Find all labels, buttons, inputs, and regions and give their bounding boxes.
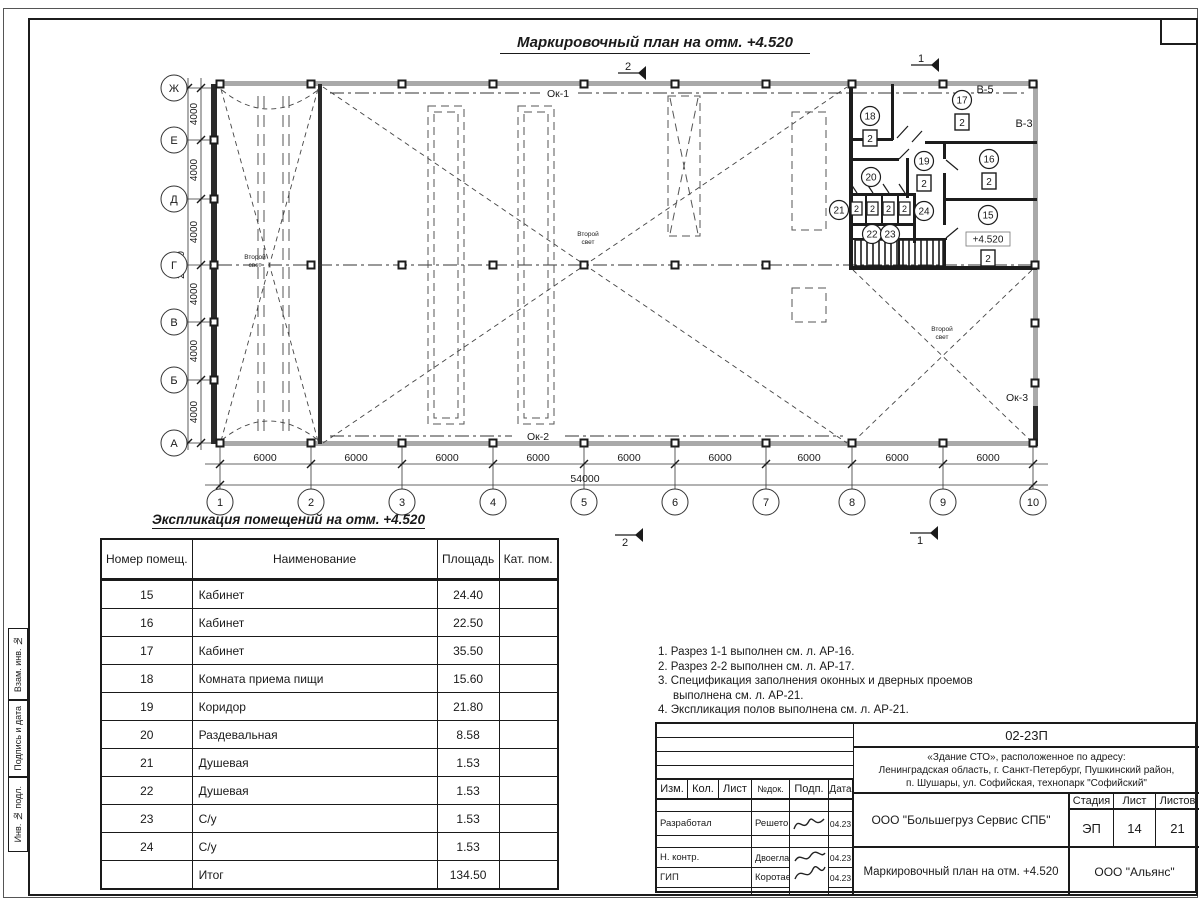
svg-text:8: 8 bbox=[849, 497, 855, 509]
explication-table: Номер помещ. Наименование Площадь Кат. п… bbox=[100, 538, 559, 890]
window-label-ok1: Ок-1 bbox=[547, 88, 569, 100]
svg-text:6000: 6000 bbox=[617, 452, 641, 464]
second-light-labels: Второйсвет Второйсвет Второйсвет bbox=[244, 230, 953, 341]
svg-text:Е: Е bbox=[170, 135, 177, 147]
table-row: 18Комната приема пищи15.60 bbox=[101, 665, 558, 693]
svg-text:7: 7 bbox=[763, 497, 769, 509]
col-podp: Подп. bbox=[790, 780, 829, 800]
svg-text:2: 2 bbox=[902, 204, 907, 214]
svg-text:6000: 6000 bbox=[435, 452, 459, 464]
title-block: Изм. Кол. Лист №док. Подп. Дата Разработ… bbox=[655, 722, 1197, 893]
svg-text:2: 2 bbox=[622, 537, 628, 549]
table-row: 20Раздевальная8.58 bbox=[101, 721, 558, 749]
svg-text:6: 6 bbox=[672, 497, 678, 509]
col-header-cat: Кат. пом. bbox=[499, 539, 558, 580]
svg-text:2: 2 bbox=[625, 61, 631, 73]
table-row: 21Душевая1.53 bbox=[101, 749, 558, 777]
svg-text:2: 2 bbox=[886, 204, 891, 214]
dimensions-horizontal: 600060006000600060006000600060006000 540… bbox=[205, 446, 1048, 515]
note-4: 4. Экспликация полов выполнена см. л. АР… bbox=[658, 703, 1030, 718]
col-data: Дата bbox=[829, 780, 854, 800]
room-marker-23: 23 bbox=[881, 225, 900, 244]
note-1: 1. Разрез 1-1 выполнен см. л. АР-16. bbox=[658, 645, 1030, 660]
svg-text:6000: 6000 bbox=[885, 452, 909, 464]
svg-text:16: 16 bbox=[983, 155, 995, 166]
svg-text:А: А bbox=[170, 438, 178, 450]
col-header-name: Наименование bbox=[192, 539, 437, 580]
sheet-number: 14 bbox=[1114, 810, 1156, 848]
room-marker-17: 172 bbox=[953, 91, 972, 131]
svg-text:2: 2 bbox=[867, 134, 873, 145]
room-marker-15: 15 +4.520 2 bbox=[966, 206, 1010, 267]
svg-text:4: 4 bbox=[490, 497, 496, 509]
svg-text:54000: 54000 bbox=[570, 473, 599, 485]
col-izm: Изм. bbox=[657, 780, 688, 800]
stage-value: ЭП bbox=[1070, 810, 1114, 848]
svg-text:1: 1 bbox=[917, 535, 923, 547]
role-developer: Разработал bbox=[657, 812, 752, 836]
svg-text:Ж: Ж bbox=[169, 83, 179, 95]
svg-text:2: 2 bbox=[986, 177, 992, 188]
col-header-area: Площадь bbox=[437, 539, 499, 580]
sheet-label: Лист bbox=[1114, 794, 1156, 810]
svg-text:свет: свет bbox=[935, 334, 948, 341]
staircase bbox=[855, 240, 943, 266]
svg-text:6000: 6000 bbox=[344, 452, 368, 464]
svg-text:5: 5 bbox=[581, 497, 587, 509]
stage-label: Стадия bbox=[1070, 794, 1114, 810]
name-developer: Решетова bbox=[752, 812, 790, 836]
svg-text:9: 9 bbox=[940, 497, 946, 509]
svg-text:2: 2 bbox=[959, 118, 965, 129]
svg-text:24: 24 bbox=[918, 207, 930, 218]
customer-company: ООО "Большегруз Сервис СПБ" bbox=[854, 794, 1070, 848]
section-mark-2-top: 2 bbox=[618, 61, 646, 80]
axis-bubbles-vertical: Ж Е Д Г В Б А bbox=[161, 75, 187, 456]
table-row: 22Душевая1.53 bbox=[101, 777, 558, 805]
total-area: 134.50 bbox=[437, 861, 499, 890]
signature-stroke bbox=[795, 852, 825, 879]
svg-text:6000: 6000 bbox=[253, 452, 277, 464]
room-marker-16: 162 bbox=[980, 150, 999, 190]
table-header-row: Номер помещ. Наименование Площадь Кат. п… bbox=[101, 539, 558, 580]
svg-text:В: В bbox=[170, 317, 177, 329]
room-marker-20: 20 bbox=[862, 168, 881, 187]
window-label-ok3: Ок-3 bbox=[1006, 392, 1028, 404]
table-row: 19Коридор21.80 bbox=[101, 693, 558, 721]
room-marker-24: 24 bbox=[915, 202, 934, 221]
svg-text:Второй: Второй bbox=[244, 253, 266, 261]
total-label: Итог bbox=[192, 861, 437, 890]
svg-text:15: 15 bbox=[982, 211, 994, 222]
svg-text:6000: 6000 bbox=[708, 452, 732, 464]
svg-text:4000: 4000 bbox=[189, 282, 200, 305]
svg-text:3: 3 bbox=[399, 497, 405, 509]
svg-text:2: 2 bbox=[921, 179, 927, 190]
window-label-ok2: Ок-2 bbox=[527, 431, 549, 443]
svg-text:4000: 4000 bbox=[189, 400, 200, 423]
col-list: Лист bbox=[719, 780, 752, 800]
svg-text:свет: свет bbox=[248, 262, 261, 269]
sheet-title: Маркировочный план на отм. +4.520 bbox=[854, 848, 1070, 895]
date-norm-control: 04.23 bbox=[829, 848, 854, 868]
col-header-num: Номер помещ. bbox=[101, 539, 192, 580]
svg-text:4000: 4000 bbox=[189, 220, 200, 243]
table-row: 17Кабинет35.50 bbox=[101, 637, 558, 665]
svg-text:Г: Г bbox=[171, 260, 177, 272]
side-stamp-podpis: Подпись и дата bbox=[8, 700, 28, 777]
side-stamp-inv: Инв. № подл. bbox=[8, 777, 28, 852]
sheets-label: Листов bbox=[1156, 794, 1199, 810]
svg-text:6000: 6000 bbox=[976, 452, 1000, 464]
explication-title: Экспликация помещений на отм. +4.520 bbox=[152, 512, 425, 529]
table-row: 15Кабинет24.40 bbox=[101, 580, 558, 609]
signature-norm-control bbox=[790, 848, 829, 888]
svg-text:6000: 6000 bbox=[797, 452, 821, 464]
svg-text:20: 20 bbox=[865, 173, 877, 184]
svg-text:+4.520: +4.520 bbox=[973, 235, 1004, 246]
dashed-pits bbox=[428, 96, 826, 424]
svg-text:Второй: Второй bbox=[577, 230, 599, 238]
table-row: 16Кабинет22.50 bbox=[101, 609, 558, 637]
name-norm-control: Двоеглазов bbox=[752, 848, 790, 868]
col-kol: Кол. bbox=[688, 780, 719, 800]
wall-label-v3: В-3 bbox=[1015, 118, 1032, 130]
room-marker-22: 22 bbox=[863, 225, 882, 244]
svg-text:2: 2 bbox=[985, 254, 991, 265]
note-3: 3. Спецификация заполнения оконных и две… bbox=[658, 674, 1030, 703]
signature-developer bbox=[790, 812, 829, 836]
svg-text:1: 1 bbox=[217, 497, 223, 509]
signature-stroke bbox=[794, 819, 824, 829]
sheets-total: 21 bbox=[1156, 810, 1199, 848]
wall-label-v5: В-5 bbox=[976, 84, 993, 96]
svg-text:2: 2 bbox=[854, 204, 859, 214]
section-mark-1-bottom: 1 bbox=[910, 526, 938, 547]
date-gip: 04.23 bbox=[829, 868, 854, 888]
svg-text:Б: Б bbox=[170, 375, 177, 387]
svg-text:23: 23 bbox=[884, 230, 896, 241]
object-address: «Здание СТО», расположенное по адресу: Л… bbox=[854, 748, 1199, 794]
table-row: 23С/у1.53 bbox=[101, 805, 558, 833]
svg-text:4000: 4000 bbox=[189, 339, 200, 362]
note-2: 2. Разрез 2-2 выполнен см. л. АР-17. bbox=[658, 660, 1030, 675]
table-row: 24С/у1.53 bbox=[101, 833, 558, 861]
svg-text:6000: 6000 bbox=[526, 452, 550, 464]
role-gip: ГИП bbox=[657, 868, 752, 888]
role-norm-control: Н. контр. bbox=[657, 848, 752, 868]
svg-text:18: 18 bbox=[864, 112, 876, 123]
svg-text:2: 2 bbox=[870, 204, 875, 214]
svg-text:17: 17 bbox=[956, 96, 968, 107]
svg-text:10: 10 bbox=[1027, 497, 1039, 509]
doc-number: 02-23П bbox=[854, 724, 1199, 748]
svg-text:Д: Д bbox=[170, 194, 178, 206]
section-marks: 2 1 2 1 bbox=[615, 53, 939, 549]
section-mark-2-bottom: 2 bbox=[615, 528, 643, 549]
svg-text:свет: свет bbox=[581, 239, 594, 246]
svg-text:2: 2 bbox=[308, 497, 314, 509]
svg-text:Второй: Второй bbox=[931, 325, 953, 333]
room-marker-19: 192 bbox=[915, 152, 934, 192]
stall-category-squares: 2 2 2 2 bbox=[851, 202, 910, 215]
table-total-row: Итог134.50 bbox=[101, 861, 558, 890]
design-org: ООО "Альянс" bbox=[1070, 848, 1199, 895]
drawing-sheet: { "plan": { "title": "Маркировочный план… bbox=[0, 0, 1200, 900]
side-stamp-vzam: Взам. инв. № bbox=[8, 628, 28, 700]
svg-text:4000: 4000 bbox=[189, 158, 200, 181]
dimensions-vertical: 4000 4000 4000 4000 4000 4000 24000 Ж Е … bbox=[161, 75, 212, 456]
section-mark-1-top: 1 bbox=[911, 53, 939, 72]
room-marker-18: 182 bbox=[861, 107, 880, 147]
floor-plan: Ок-1 Ок-2 Ок-3 В-5 В-3 Второйсвет Второй… bbox=[0, 0, 1200, 570]
svg-text:4000: 4000 bbox=[189, 102, 200, 125]
notes: 1. Разрез 1-1 выполнен см. л. АР-16. 2. … bbox=[658, 645, 1030, 718]
name-gip: Коротаев bbox=[752, 868, 790, 888]
svg-text:19: 19 bbox=[918, 157, 930, 168]
date-developer: 04.23 bbox=[829, 812, 854, 836]
svg-text:22: 22 bbox=[866, 230, 878, 241]
col-ndoc: №док. bbox=[752, 780, 790, 800]
svg-text:1: 1 bbox=[918, 53, 924, 65]
room-marker-21: 21 bbox=[830, 201, 849, 220]
svg-text:21: 21 bbox=[833, 206, 845, 217]
